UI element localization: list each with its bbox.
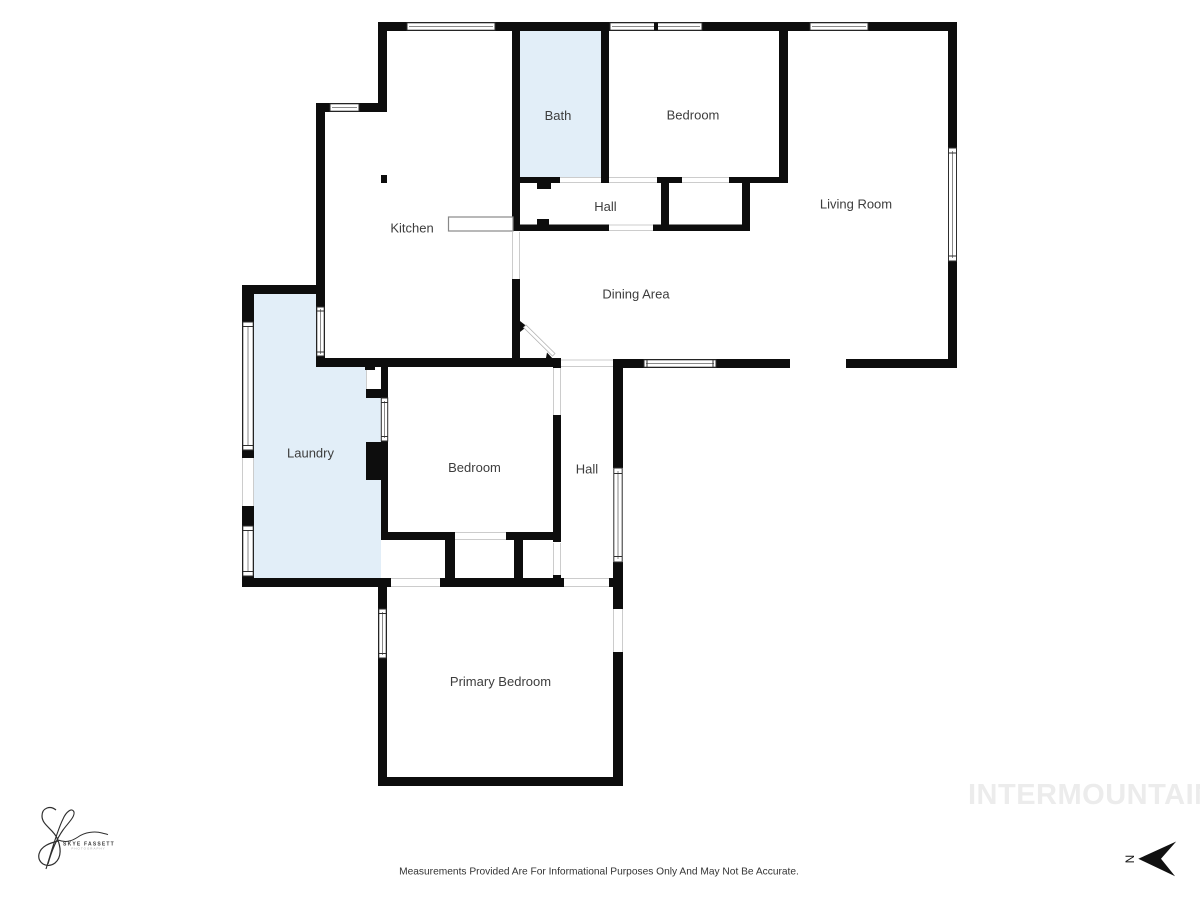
svg-text:INTERMOUNTAIN: INTERMOUNTAIN (968, 779, 1200, 811)
svg-text:Measurements Provided Are For: Measurements Provided Are For Informatio… (399, 867, 799, 878)
svg-text:Primary Bedroom: Primary Bedroom (450, 674, 551, 689)
svg-text:Kitchen: Kitchen (390, 221, 433, 236)
svg-text:Laundry: Laundry (287, 446, 334, 461)
svg-text:Hall: Hall (576, 462, 599, 477)
svg-text:Bedroom: Bedroom (448, 460, 501, 475)
svg-text:Living Room: Living Room (820, 197, 892, 212)
svg-text:Dining Area: Dining Area (602, 287, 670, 302)
svg-text:Hall: Hall (594, 199, 617, 214)
svg-text:Bath: Bath (545, 108, 572, 123)
svg-text:N: N (1123, 855, 1137, 864)
svg-text:PHOTOGRAPHY: PHOTOGRAPHY (71, 847, 105, 851)
svg-text:Bedroom: Bedroom (667, 108, 720, 123)
